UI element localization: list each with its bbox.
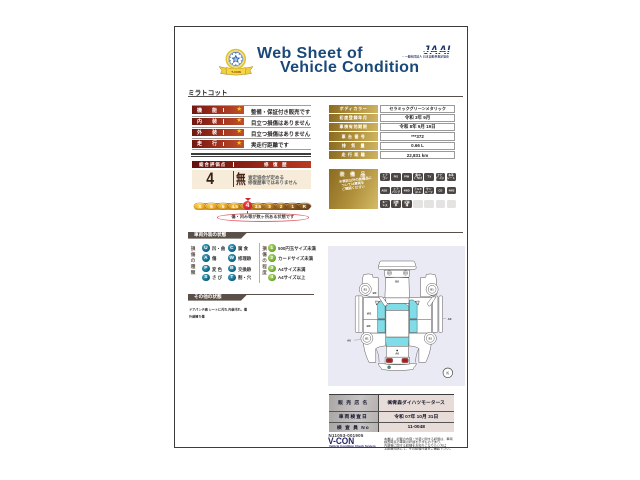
svg-text:B1: B1 xyxy=(365,337,369,341)
svg-text:T·CON: T·CON xyxy=(231,70,241,74)
svg-text:A0: A0 xyxy=(347,339,351,343)
svg-text:B1: B1 xyxy=(363,288,367,292)
svg-text:B0: B0 xyxy=(372,291,376,295)
svg-text:W1: W1 xyxy=(366,311,371,315)
svg-text:B1: B1 xyxy=(430,288,434,292)
svg-text:A0: A0 xyxy=(395,352,399,356)
svg-text:B0: B0 xyxy=(395,280,399,284)
svg-text:B0: B0 xyxy=(366,324,370,328)
svg-text:A0: A0 xyxy=(447,317,451,321)
svg-text:K: K xyxy=(446,371,449,376)
svg-text:B1: B1 xyxy=(428,337,432,341)
